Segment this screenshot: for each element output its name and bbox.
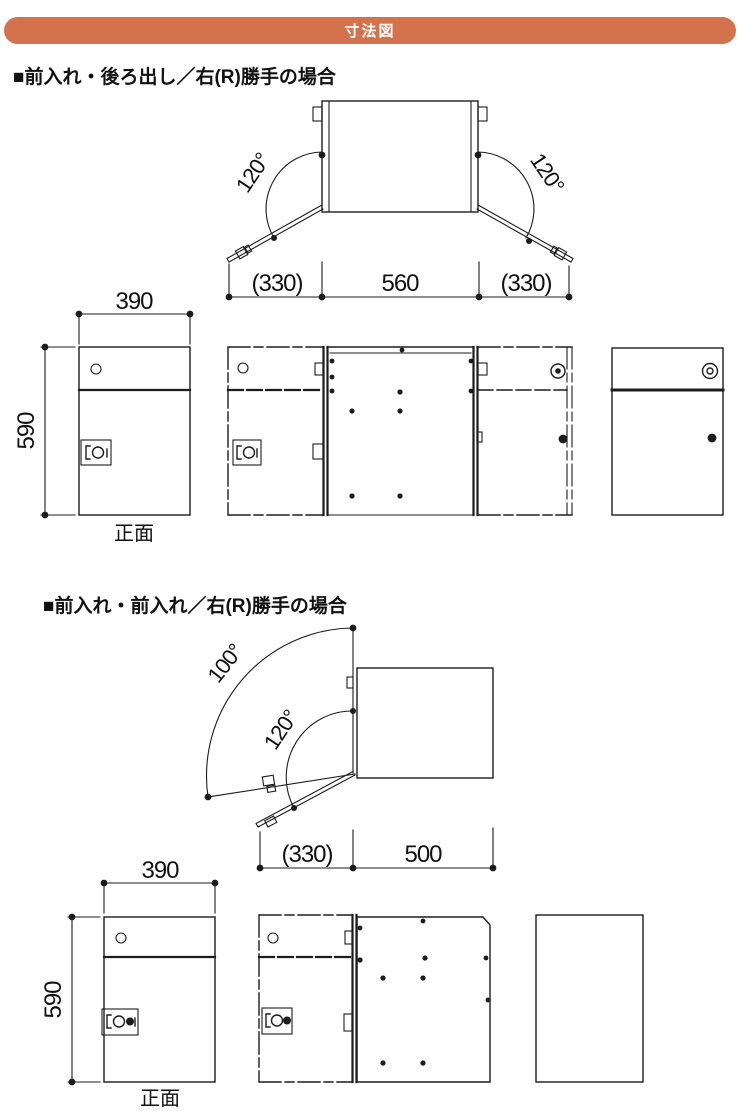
angle-label-left: 120° (231, 148, 275, 197)
door-open-vertical (347, 625, 356, 773)
cabinet-body-plan-1 (313, 101, 487, 212)
open-door-edge-2 (344, 915, 357, 1082)
latch-icon (313, 107, 322, 121)
latch-icon (347, 677, 353, 688)
lock-panel-icon (102, 1009, 138, 1035)
dim-label-590: 590 (40, 981, 67, 1019)
front-caption-2: 正面 (140, 1088, 180, 1110)
door-latch-icon (262, 775, 274, 786)
hinge-icon (315, 363, 323, 375)
latch-icon (478, 107, 487, 121)
dim-label-390: 390 (141, 857, 179, 884)
keyhole-icon (116, 933, 126, 943)
cylinder-lock-icon (551, 364, 565, 378)
dimension-line-plan-2: (330) 500 (257, 828, 497, 871)
dim-label-500: 500 (404, 841, 442, 868)
screw-hole-dots (330, 348, 474, 499)
interior-panel-2 (357, 917, 490, 1082)
door-left-open-120 (227, 206, 323, 263)
lock-panel-icon (262, 1008, 292, 1034)
swing-arc-right (475, 152, 534, 244)
interior-panel-1 (328, 347, 473, 515)
knob-dot (559, 435, 568, 444)
door-right-open-120 (477, 206, 573, 263)
door-open-120 (256, 772, 355, 828)
open-door-edge-right (474, 347, 488, 515)
front-caption-1: 正面 (114, 523, 154, 545)
dimension-line-plan-1: (330) 560 (330) (226, 262, 573, 300)
dim-label-590: 590 (13, 412, 40, 450)
angle-label-right: 120° (525, 149, 569, 198)
plan-view-1: 120° 120° (330) 560 (330) (226, 101, 573, 300)
open-view-1 (228, 347, 572, 515)
lock-panel-icon (233, 440, 261, 465)
front-view-1: 390 590 正面 (13, 288, 193, 545)
cabinet-body-plan-2 (357, 668, 493, 778)
technical-drawing: 120° 120° (330) 560 (330) (0, 0, 740, 1111)
back-view-1 (612, 348, 723, 515)
hinge-icon (344, 1014, 352, 1031)
dimension-drawing-page: 寸法図 ■前入れ・後ろ出し／右(R)勝手の場合 ■前入れ・前入れ／右(R)勝手の… (0, 0, 740, 1111)
screw-hole-dots (357, 919, 490, 1066)
dimension-width-2: 390 (101, 857, 219, 913)
open-view-2 (259, 915, 490, 1082)
dim-label-560: 560 (381, 270, 419, 297)
front-view-2: 390 590 正面 (40, 857, 218, 1110)
open-rear-door-face-1 (478, 347, 572, 515)
hinge-icon (345, 931, 352, 944)
lock-panel-icon (81, 440, 111, 465)
dim-label-330: (330) (281, 841, 332, 868)
dim-label-330-right: (330) (500, 270, 551, 297)
hinge-icon (313, 444, 323, 459)
cylinder-lock-icon (703, 364, 718, 379)
left-compartment-1 (228, 347, 323, 515)
dimension-height-2: 590 (40, 914, 100, 1086)
hinge-icon (478, 363, 487, 375)
plan-view-2: 100° 120° (330) 500 (202, 625, 496, 872)
dim-label-330-left: (330) (251, 270, 302, 297)
keyhole-icon (238, 363, 248, 373)
dimension-width-1: 390 (76, 288, 194, 344)
keyhole-icon (268, 933, 278, 943)
angle-label-120: 120° (259, 705, 303, 754)
keyhole-icon (91, 364, 101, 374)
back-view-2 (536, 915, 643, 1082)
open-door-edge-left (313, 347, 328, 515)
left-compartment-2 (259, 915, 352, 1082)
knob-dot (708, 434, 717, 443)
dimension-height-1: 590 (13, 344, 75, 519)
dim-label-390: 390 (115, 288, 153, 315)
swing-arc-left (266, 152, 325, 241)
